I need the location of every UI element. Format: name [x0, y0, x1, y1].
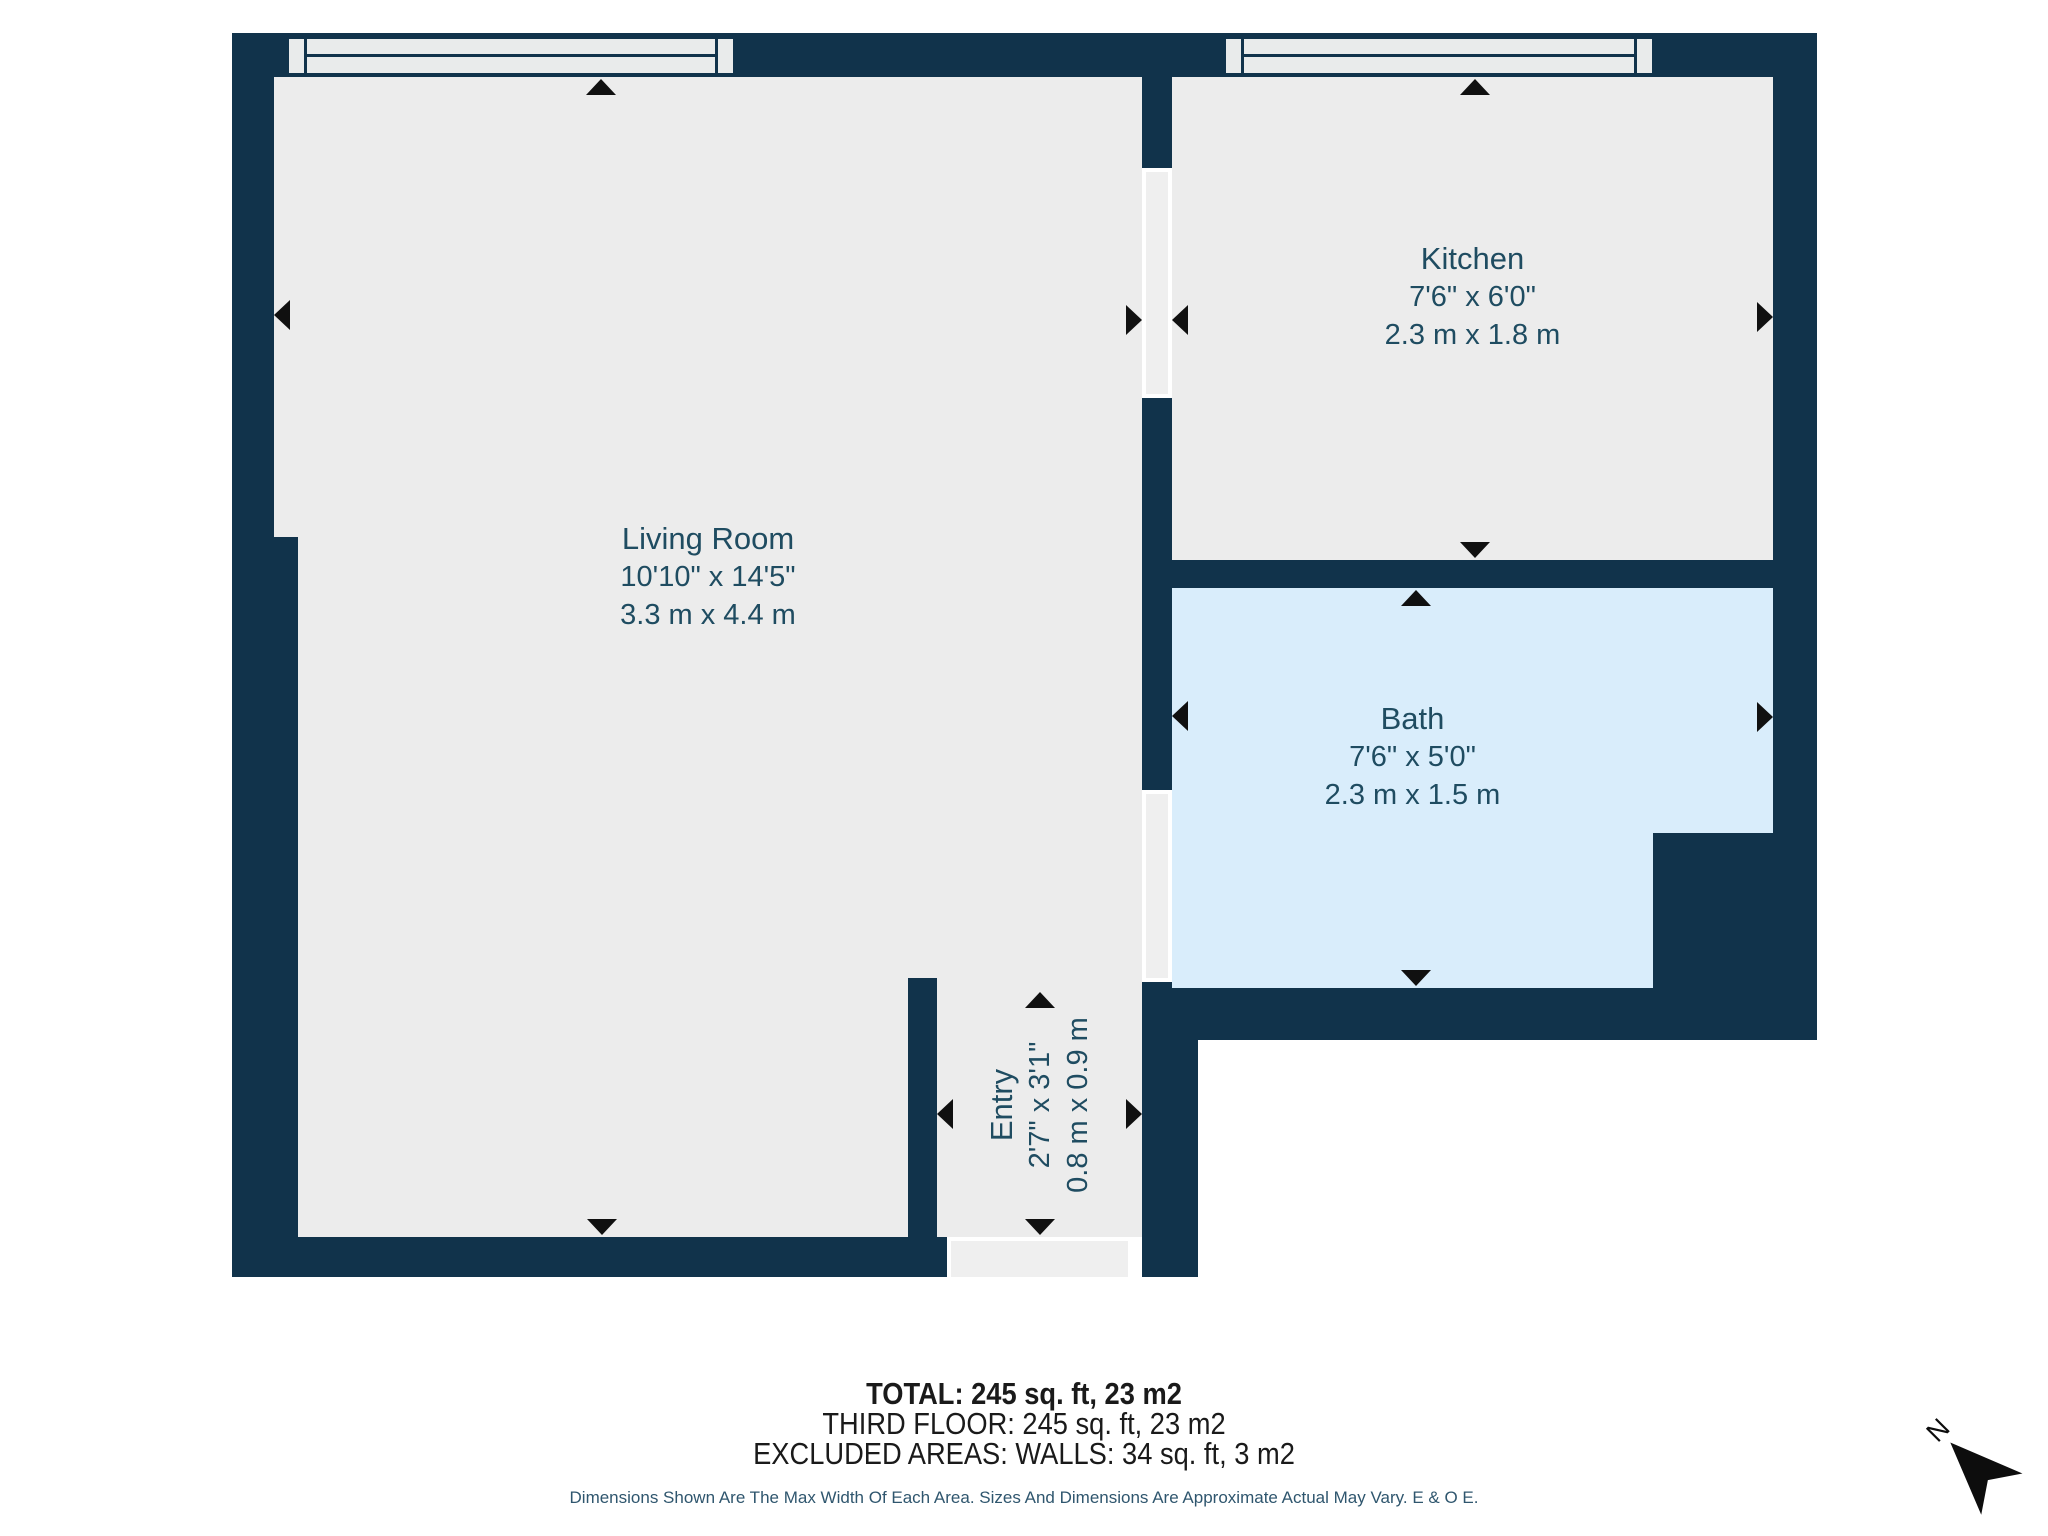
room-dimensions-metric: 2.3 m x 1.5 m	[1172, 776, 1653, 814]
bath-arrow-right-icon	[1757, 702, 1773, 732]
kitchen-label: Kitchen 7'6" x 6'0" 2.3 m x 1.8 m	[1172, 240, 1773, 354]
room-dimensions-metric: 3.3 m x 4.4 m	[274, 596, 1142, 634]
bath-label: Bath 7'6" x 5'0" 2.3 m x 1.5 m	[1172, 700, 1653, 814]
room-dimensions-metric: 2.3 m x 1.8 m	[1172, 316, 1773, 354]
excluded-area-text: EXCLUDED AREAS: WALLS: 34 sq. ft, 3 m2	[123, 1439, 1925, 1469]
room-name: Entry	[983, 1017, 1021, 1193]
window-pane	[307, 39, 715, 73]
middle-wall-upper	[1142, 77, 1172, 170]
window-pane	[1244, 39, 1634, 73]
entry-right-wall	[1142, 1040, 1198, 1277]
kitchen-bath-wall	[1142, 560, 1817, 588]
disclaimer-text: Dimensions Shown Are The Max Width Of Ea…	[0, 1488, 2048, 1508]
entry-arrow-up-icon	[1025, 992, 1055, 1008]
entry-stub-wall	[908, 978, 937, 1277]
living-room-arrow-up-icon	[586, 79, 616, 95]
bath-door-opening	[1142, 790, 1172, 982]
room-dimensions-imperial: 7'6" x 5'0"	[1172, 738, 1653, 776]
room-dimensions-imperial: 10'10" x 14'5"	[274, 558, 1142, 596]
bath-corner-notch	[1653, 833, 1773, 988]
living-room-arrow-right-icon	[1126, 305, 1142, 335]
living-room-label: Living Room 10'10" x 14'5" 3.3 m x 4.4 m	[274, 520, 1142, 634]
total-area-text: TOTAL: 245 sq. ft, 23 m2	[123, 1378, 1925, 1409]
kitchen-window	[1222, 35, 1656, 77]
room-name: Bath	[1172, 700, 1653, 738]
entry-arrow-left-icon	[937, 1099, 953, 1129]
room-dimensions-imperial: 2'7" x 3'1"	[1021, 1017, 1059, 1193]
room-name: Kitchen	[1172, 240, 1773, 278]
room-name: Living Room	[274, 520, 1142, 558]
entry-door-opening	[947, 1237, 1132, 1281]
floor-plan: Living Room 10'10" x 14'5" 3.3 m x 4.4 m…	[0, 0, 2048, 1536]
entry-arrow-down-icon	[1025, 1219, 1055, 1235]
floor-area-text: THIRD FLOOR: 245 sq. ft, 23 m2	[123, 1409, 1925, 1439]
north-label: N	[1920, 1412, 1956, 1448]
bottom-wall	[232, 1237, 947, 1277]
living-room-arrow-left-icon	[274, 300, 290, 330]
room-dimensions-metric: 0.8 m x 0.9 m	[1059, 1017, 1097, 1193]
window-jamb	[289, 39, 307, 73]
left-wall	[232, 33, 274, 1277]
bath-arrow-up-icon	[1401, 590, 1431, 606]
kitchen-arrow-down-icon	[1460, 542, 1490, 558]
window-jamb	[715, 39, 733, 73]
north-arrow-icon: N	[1918, 1405, 2043, 1530]
bath-arrow-down-icon	[1401, 970, 1431, 986]
living-room-window	[285, 35, 737, 77]
window-jamb	[1634, 39, 1652, 73]
area-summary: TOTAL: 245 sq. ft, 23 m2 THIRD FLOOR: 24…	[123, 1378, 1925, 1469]
living-kitchen-opening	[1142, 168, 1172, 398]
right-wall	[1773, 33, 1817, 1040]
living-room-arrow-down-icon	[587, 1219, 617, 1235]
kitchen-arrow-up-icon	[1460, 79, 1490, 95]
left-wall-step	[274, 537, 298, 1277]
entry-label: Entry 2'7" x 3'1" 0.8 m x 0.9 m	[983, 1017, 1097, 1193]
middle-wall-lower	[1142, 396, 1172, 790]
bath-bottom-wall	[1142, 988, 1817, 1040]
room-dimensions-imperial: 7'6" x 6'0"	[1172, 278, 1773, 316]
entry-arrow-right-icon	[1126, 1099, 1142, 1129]
window-jamb	[1226, 39, 1244, 73]
